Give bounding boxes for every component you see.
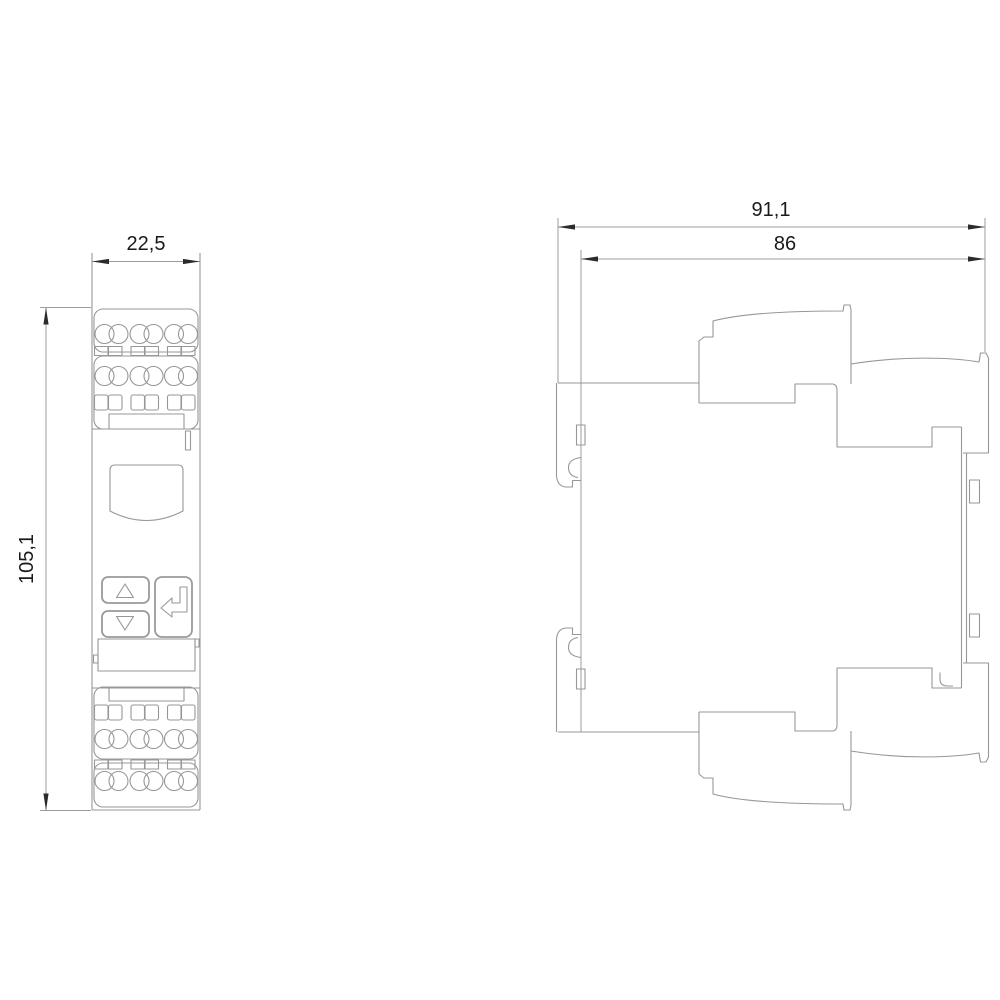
dim-arrow-left <box>92 259 109 264</box>
front-width-label: 22,5 <box>127 233 166 255</box>
terminal-screw-slots-top <box>95 395 196 410</box>
side-total-depth-label: 91,1 <box>752 199 791 221</box>
dim-arrow-left <box>581 256 598 261</box>
front-view: 22,5 105,1 <box>16 233 200 811</box>
terminal-holes-row2 <box>95 367 198 386</box>
front-face-window-bottom <box>970 614 980 637</box>
led-slot <box>186 431 191 450</box>
front-face <box>92 431 200 688</box>
side-view: 91,1 86 <box>557 199 989 810</box>
side-front-face <box>962 427 980 688</box>
up-arrow-icon <box>117 584 134 598</box>
terminal-label-strip-top <box>109 414 184 429</box>
terminal-screw-slots-bottom <box>95 705 196 720</box>
side-rear-profile <box>557 383 700 732</box>
dim-arrow-up <box>43 308 48 325</box>
side-top-terminal-block <box>699 305 962 447</box>
terminal-block-top-inner <box>94 356 198 429</box>
label-plate <box>98 639 195 671</box>
front-width-dimension: 22,5 <box>92 233 200 264</box>
front-face-window-top <box>970 480 980 503</box>
front-bottom-terminals <box>94 687 198 807</box>
down-arrow-icon <box>117 617 134 631</box>
dim-arrow-right <box>183 259 200 264</box>
terminal-holes-row3 <box>95 730 198 749</box>
front-height-label: 105,1 <box>16 534 38 584</box>
enter-arrow-icon <box>161 587 187 617</box>
side-bottom-cover <box>851 663 989 762</box>
terminal-holes-row1 <box>95 325 198 344</box>
dimension-drawing-page: 22,5 105,1 <box>0 0 1000 1000</box>
terminal-block-bottom-inner <box>94 687 198 759</box>
front-body-outline <box>92 253 200 810</box>
front-height-dimension: 105,1 <box>16 308 91 811</box>
drawing-svg: 22,5 105,1 <box>0 0 1000 1000</box>
display-window <box>110 465 183 521</box>
terminal-label-strip-bottom <box>109 688 184 701</box>
side-top-cover <box>851 353 989 453</box>
side-body-depth-label: 86 <box>774 233 796 255</box>
side-bottom-terminal-block <box>699 668 962 810</box>
side-body-depth-dimension: 86 <box>581 233 985 732</box>
dim-arrow-right <box>968 224 985 229</box>
front-top-terminals <box>92 309 200 429</box>
dim-arrow-right <box>968 256 985 261</box>
terminal-holes-row4 <box>95 772 198 791</box>
dim-arrow-left <box>558 224 575 229</box>
side-total-depth-dimension: 91,1 <box>558 199 985 383</box>
up-button <box>102 577 149 603</box>
dim-arrow-down <box>43 794 48 811</box>
down-button <box>102 611 149 637</box>
